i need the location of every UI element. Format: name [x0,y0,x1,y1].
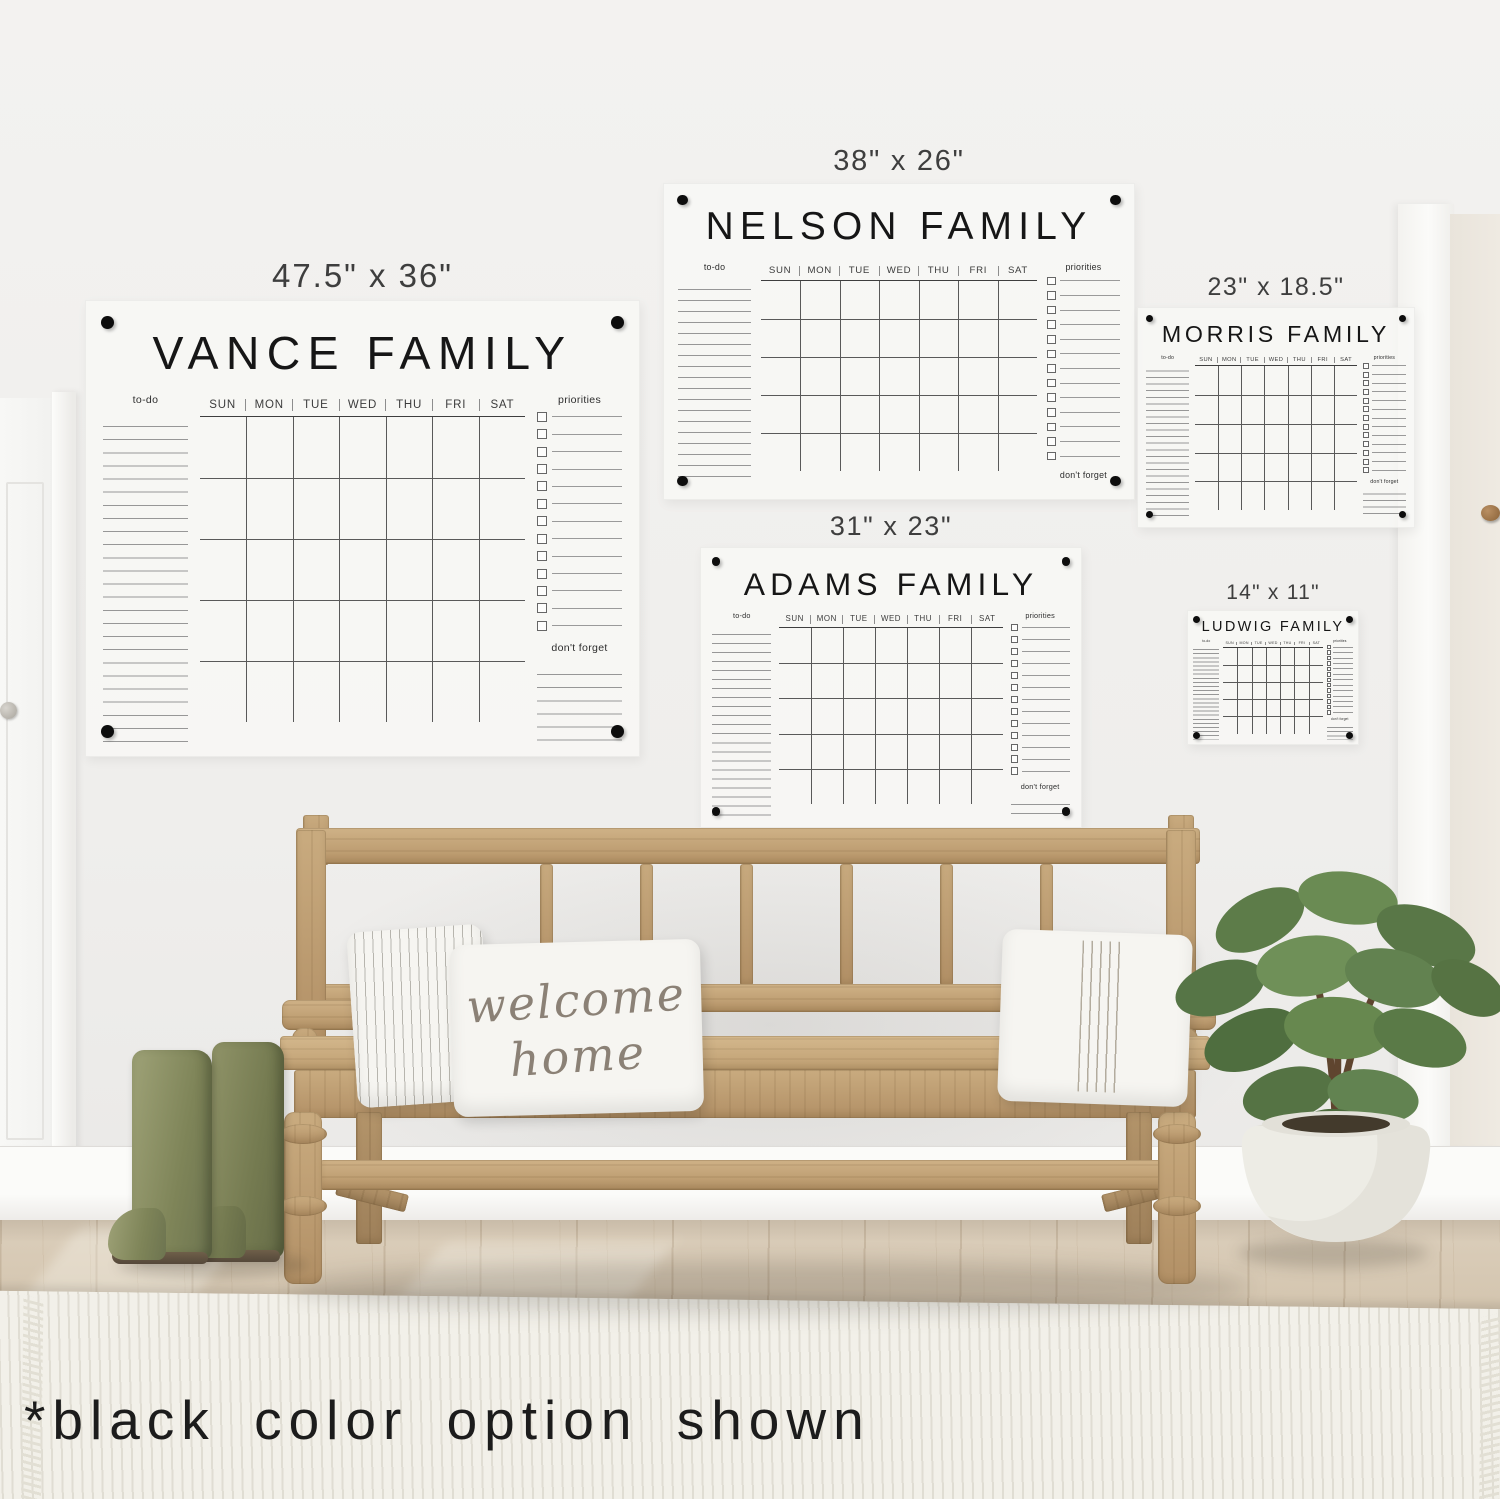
month-grid-column: SUNMONTUEWEDTHUFRISAT [1195,355,1357,520]
grid-cell [843,628,875,663]
priority-row [1327,683,1353,688]
priority-row [537,496,623,511]
grid-cell [1294,648,1308,665]
priority-line [552,521,623,522]
checkbox [1327,645,1332,650]
priority-line [552,416,623,417]
priority-row [537,409,623,424]
priority-row [1327,688,1353,693]
day-label: TUE [842,615,874,624]
priority-line [1060,353,1120,354]
mount-dot [1346,732,1353,739]
pillow-stripe-band [1077,940,1124,1093]
grid-cell [800,395,840,433]
grid-cell [1288,424,1311,453]
checkbox [537,464,547,474]
grid-cell [1309,682,1323,699]
grid-cell [840,281,880,319]
priority-line [1372,444,1406,445]
priority-row [1047,406,1120,419]
grid-cell [1195,453,1218,482]
grid-cell [339,478,385,539]
grid-cell [386,600,433,661]
day-label: SAT [1309,642,1323,646]
priority-line [1372,426,1406,427]
grid-cell [879,395,919,433]
priority-line [1333,647,1353,648]
grid-cell [779,663,811,698]
grid-cell [386,417,433,478]
grid-cell [1294,682,1308,699]
priority-row [1363,406,1406,414]
grid-cell [1218,395,1241,424]
priority-line [552,590,623,591]
checkbox [1011,684,1019,692]
grid-cell [1334,366,1357,395]
priority-row [1011,706,1070,716]
day-label: SUN [1223,642,1236,646]
month-grid-column: SUNMONTUEWEDTHUFRISAT [200,394,525,741]
day-label: MON [1236,642,1250,646]
grid-cell [958,433,998,471]
priority-line [1372,383,1406,384]
grid-cell [1288,366,1311,395]
side-column: priorities don't forget [1363,355,1406,520]
priority-row [1363,458,1406,466]
priority-row [1327,661,1353,666]
checkbox [1363,450,1369,456]
day-header-row: SUNMONTUEWEDTHUFRISAT [1195,355,1357,366]
grid-cell [761,357,801,395]
grid-cell [293,600,340,661]
bench-back-top-rail [296,828,1200,864]
checkbox [1047,350,1056,359]
checkbox [1327,678,1332,683]
grid-cell [1311,424,1334,453]
grid-cell [1223,716,1237,733]
priority-row [1047,304,1120,317]
todo-label: to-do [678,262,751,273]
grid-cell [479,539,526,600]
right-door-knob-icon [1481,505,1500,521]
checkbox [1047,364,1056,373]
priority-row [1327,672,1353,677]
checkbox [1327,672,1332,677]
checkbox [1363,467,1369,473]
mount-dot [677,195,688,206]
priority-line [1333,690,1353,691]
grid-cell [1241,395,1264,424]
grid-cell [811,769,843,804]
product-photo-scene: 47.5" x 36" VANCE FAMILY to-do SUNMONTUE… [0,0,1500,1499]
checkbox [537,534,547,544]
todo-column: to-do [1146,355,1189,520]
checkbox [1047,320,1056,329]
day-label: FRI [1311,357,1334,363]
checkbox [537,429,547,439]
priority-row [1327,677,1353,682]
day-label: MON [1217,357,1240,363]
checkbox [1047,306,1056,315]
priority-line [1333,663,1353,664]
grid-cell [339,600,385,661]
grid-cell [1266,699,1280,716]
checkbox [1047,335,1056,344]
grid-cell [1252,716,1266,733]
left-door [0,398,56,1180]
pillow-striped-right [997,929,1193,1108]
priority-row [1327,699,1353,704]
checkbox [1363,441,1369,447]
calendar-morris: 23" x 18.5" MORRIS FAMILY to-do SUNMONTU… [1137,307,1415,528]
priority-line [1333,652,1353,653]
priority-row [1327,705,1353,710]
checkbox [1327,699,1332,704]
priority-row [537,444,623,459]
grid-cell [761,281,801,319]
todo-lines [103,414,189,741]
grid-cell [840,395,880,433]
grid-cell [875,663,907,698]
priority-row [1011,682,1070,692]
priority-line [1333,658,1353,659]
checkbox [1363,389,1369,395]
priority-line [1333,685,1353,686]
grid-cell [907,734,939,769]
grid-cell [779,734,811,769]
grid-cell [879,433,919,471]
priority-row [1327,650,1353,655]
grid-cell [1311,366,1334,395]
grid-cell [1334,453,1357,482]
grid-cell [1288,481,1311,510]
priority-row [537,514,623,529]
checkbox [537,412,547,422]
grid-cell [1264,366,1287,395]
priority-row [1011,670,1070,680]
priority-line [1060,397,1120,398]
priority-row [1011,718,1070,728]
day-label: TUE [1240,357,1263,363]
priority-line [1333,701,1353,702]
calendar-title: NELSON FAMILY [664,205,1134,250]
checkbox [1363,398,1369,404]
boot-left [132,1050,212,1260]
calendar-ludwig: 14" x 11" LUDWIG FAMILY to-do SUNMONTUEW… [1187,610,1359,745]
grid-cell [1264,453,1287,482]
priority-row [1011,646,1070,656]
day-label: WED [874,615,906,624]
grid-cell [1288,453,1311,482]
checkbox [1363,372,1369,378]
grid-cell [1241,481,1264,510]
priority-row [537,583,623,598]
priority-line [1022,651,1070,652]
grid-cell [998,319,1038,357]
day-label: TUE [292,399,339,412]
day-label: TUE [839,266,879,277]
checkbox [1363,432,1369,438]
checkbox [1011,720,1019,728]
priority-line [1060,310,1120,311]
mount-dot [712,807,721,816]
grid-cell [919,281,959,319]
grid-cell [843,769,875,804]
priority-line [1022,639,1070,640]
priority-line [1372,470,1406,471]
priority-line [1372,461,1406,462]
bench-floor-shadow [290,1262,1250,1314]
day-label: MON [810,615,842,624]
priority-row [537,479,623,494]
grid-cell [339,661,385,722]
day-label: SUN [200,399,246,412]
mount-dot [101,725,114,738]
day-label: THU [1287,357,1310,363]
boot-sole [112,1252,208,1264]
priority-line [552,608,623,609]
priorities-label: priorities [1047,262,1120,273]
day-label: FRI [958,266,998,277]
day-label: WED [879,266,919,277]
grid-cell [479,661,526,722]
checkbox [1327,656,1332,661]
grid-cell [1309,699,1323,716]
checkbox [537,447,547,457]
day-label: THU [385,399,432,412]
grid-cell [800,281,840,319]
calendar-title: ADAMS FAMILY [701,566,1081,603]
mount-dot [1110,476,1121,487]
grid-cell [1252,682,1266,699]
checkbox [1363,363,1369,369]
grid-cell [1264,481,1287,510]
bench-spindle [840,864,853,986]
priority-row [1363,423,1406,431]
priority-line [1060,456,1120,457]
grid-cell [1309,665,1323,682]
priority-row [537,618,623,633]
checkbox [1363,406,1369,412]
month-grid-column: SUNMONTUEWEDTHUFRISAT [779,612,1003,817]
grid-cell [1241,453,1264,482]
priority-line [1372,418,1406,419]
todo-lines [1146,365,1189,520]
grid-cell [1264,424,1287,453]
grid-cell [1218,366,1241,395]
day-label: WED [1265,642,1279,646]
calendar-title: VANCE FAMILY [86,327,639,380]
grid-cell [843,663,875,698]
grid-cell [843,698,875,733]
grid-cell [879,319,919,357]
priority-line [1333,706,1353,707]
day-label: THU [918,266,958,277]
grid-cell [919,395,959,433]
priorities-label: priorities [537,394,623,407]
dont-forget-label: don't forget [1363,479,1406,485]
day-label: SAT [1334,357,1357,363]
day-label: SUN [779,615,810,624]
priority-line [1022,771,1070,772]
grid-cell [1237,699,1251,716]
grid-cell [875,628,907,663]
priority-line [1372,374,1406,375]
size-label: 38" x 26" [616,145,1182,178]
grid-cell [1266,665,1280,682]
grid-cell [1294,716,1308,733]
dont-forget-lines [537,662,623,741]
grid-cell [811,663,843,698]
priority-row [1363,388,1406,396]
todo-lines [712,626,771,817]
priority-row [1047,333,1120,346]
grid-cell [293,417,340,478]
acrylic-panel: MORRIS FAMILY to-do SUNMONTUEWEDTHUFRISA… [1137,307,1415,528]
pillow-welcome-home: welcome home [450,939,704,1117]
grid-cell [907,663,939,698]
priority-row [1011,730,1070,740]
grid-cell [1223,682,1237,699]
grid-cell [200,417,246,478]
priority-line [1372,391,1406,392]
todo-column: to-do [1193,640,1219,739]
size-label: 23" x 18.5" [1109,273,1443,302]
caption-text: *black color option shown [24,1388,871,1452]
month-grid-column: SUNMONTUEWEDTHUFRISAT [761,262,1038,487]
calendar-grid [1195,365,1357,510]
priority-line [1333,696,1353,697]
priority-line [1333,679,1353,680]
grid-cell [1334,395,1357,424]
grid-cell [1218,453,1241,482]
day-label: SUN [1195,357,1217,363]
priority-row [1047,391,1120,404]
priority-line [552,503,623,504]
priority-row [1363,371,1406,379]
checkbox [1011,708,1019,716]
grid-cell [811,734,843,769]
calendar-nelson: 38" x 26" NELSON FAMILY to-do SUNMONTUEW… [663,183,1135,500]
day-label: FRI [939,615,971,624]
todo-column: to-do [678,262,751,487]
priority-row [537,427,623,442]
bench-spindle [740,864,753,986]
checkbox [537,603,547,613]
grid-cell [1241,366,1264,395]
checkbox [1363,380,1369,386]
grid-cell [919,433,959,471]
priority-row [537,566,623,581]
priorities-label: priorities [1363,355,1406,361]
mount-dot [1193,732,1200,739]
grid-cell [958,395,998,433]
priority-line [1372,452,1406,453]
grid-cell [1252,648,1266,665]
grid-cell [971,769,1003,804]
grid-cell [200,539,246,600]
priority-row [537,461,623,476]
grid-cell [1280,682,1294,699]
priority-line [1372,435,1406,436]
todo-column: to-do [103,394,189,741]
day-label: FRI [432,399,479,412]
priority-row [537,549,623,564]
grid-cell [432,661,479,722]
priority-line [552,434,623,435]
priority-line [552,573,623,574]
grid-cell [971,663,1003,698]
todo-label: to-do [1146,355,1189,361]
day-header-row: SUNMONTUEWEDTHUFRISAT [200,394,525,416]
side-column: priorities don't forget [537,394,623,741]
priority-line [1060,339,1120,340]
grid-cell [958,319,998,357]
calendar-body: to-do SUNMONTUEWEDTHUFRISAT priorities d… [712,612,1069,817]
grid-cell [200,600,246,661]
plant-pot [1242,1111,1430,1242]
dont-forget-label: don't forget [1047,470,1120,481]
priority-line [552,486,623,487]
grid-cell [1309,716,1323,733]
month-grid-column: SUNMONTUEWEDTHUFRISAT [1223,640,1323,739]
priority-row [537,601,623,616]
grid-cell [386,478,433,539]
grid-cell [479,478,526,539]
grid-cell [811,698,843,733]
checkbox [1327,650,1332,655]
calendar-grid [779,627,1003,804]
checkbox [537,551,547,561]
grid-cell [843,734,875,769]
priority-row [1363,379,1406,387]
day-label: WED [339,399,386,412]
priority-row [1327,656,1353,661]
grid-cell [432,539,479,600]
grid-cell [971,628,1003,663]
mount-dot [1110,195,1121,206]
calendar-grid [200,416,525,723]
grid-cell [246,478,293,539]
priority-row [1047,362,1120,375]
priority-line [1060,412,1120,413]
checkbox [1011,696,1019,704]
grid-cell [246,417,293,478]
priority-line [1060,324,1120,325]
priorities-label: priorities [1011,612,1070,621]
priorities-label: priorities [1327,640,1353,644]
priority-line [1372,400,1406,401]
checkbox [537,569,547,579]
priority-row [1047,421,1120,434]
grid-cell [432,600,479,661]
grid-cell [1241,424,1264,453]
grid-cell [200,661,246,722]
day-label: SAT [479,399,526,412]
grid-cell [1195,481,1218,510]
size-label: 47.5" x 36" [30,257,696,295]
grid-cell [1294,699,1308,716]
priority-line [1022,711,1070,712]
boot-right [212,1042,284,1258]
checkbox [1011,636,1019,644]
grid-cell [939,698,971,733]
checkbox [1011,624,1019,632]
grid-cell [1237,682,1251,699]
priority-row [1363,466,1406,474]
day-header-row: SUNMONTUEWEDTHUFRISAT [779,612,1003,627]
grid-cell [386,661,433,722]
